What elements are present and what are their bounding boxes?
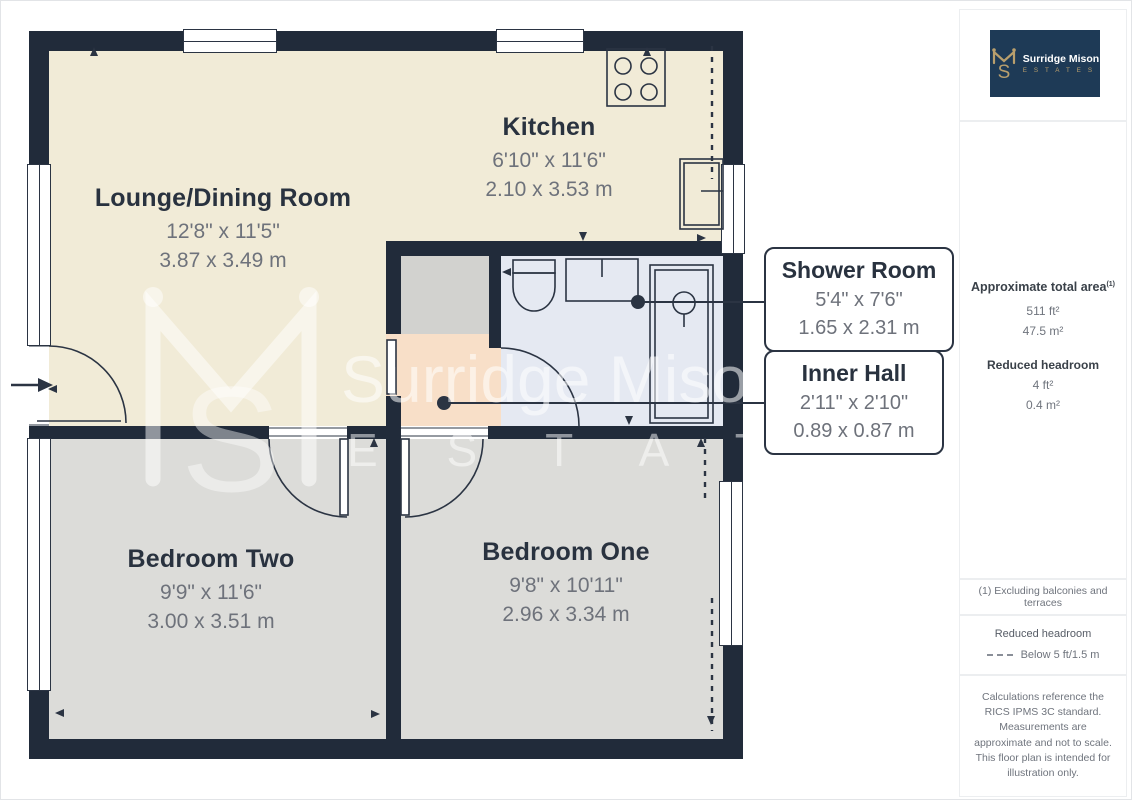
lounge-name: Lounge/Dining Room xyxy=(73,184,373,213)
headroom-title: Reduced headroom xyxy=(960,358,1126,372)
svg-text:S: S xyxy=(997,62,1010,81)
bedroom-one-name: Bedroom One xyxy=(421,538,711,567)
entrance-door-gap xyxy=(29,346,49,426)
agency-name: Surridge Mison xyxy=(1023,53,1099,65)
shower-room-callout: Shower Room 5'4" x 7'6" 1.65 x 2.31 m xyxy=(764,247,954,352)
sidebar-legend-card: Reduced headroom Below 5 ft/1.5 m xyxy=(959,615,1127,675)
agency-logo: S Surridge Mison E S T A T E S xyxy=(990,30,1100,97)
kitchen-name: Kitchen xyxy=(429,113,669,142)
headroom-m: 0.4 m² xyxy=(960,398,1126,412)
wall-kitchen-bottom xyxy=(386,241,723,256)
brand-suffix: 360 xyxy=(1061,796,1084,800)
area-ft: 511 ft² xyxy=(960,304,1126,318)
wall-exterior-right xyxy=(723,31,743,759)
bedroom-one-metric: 2.96 x 3.34 m xyxy=(421,600,711,629)
area-title: Approximate total area xyxy=(971,280,1106,294)
wall-shower-left xyxy=(489,256,501,348)
sidebar-note-card: (1) Excluding balconies and terraces xyxy=(959,579,1127,615)
disclaimer-text: Calculations reference the RICS IPMS 3C … xyxy=(972,690,1114,781)
excluding-note: (1) Excluding balconies and terraces xyxy=(968,585,1118,609)
window-right-bedroom-one xyxy=(719,481,743,646)
floorplan-page: S Surridge Mison E S T A T E S Lounge/Di… xyxy=(0,0,1132,800)
window-left-lounge xyxy=(27,164,51,346)
wall-spine-upper xyxy=(386,241,401,334)
bedroom-one-imperial: 9'8" x 10'11" xyxy=(421,571,711,600)
wall-bedroom-one-top xyxy=(488,426,723,439)
lounge-imperial: 12'8" x 11'5" xyxy=(73,217,373,246)
inner-hall-callout: Inner Hall 2'11" x 2'10" 0.89 x 0.87 m xyxy=(764,350,944,455)
shower-room-metric: 1.65 x 2.31 m xyxy=(780,314,938,342)
wall-exterior-bottom xyxy=(29,739,743,759)
wall-spine-central xyxy=(386,396,401,739)
kitchen-metric: 2.10 x 3.53 m xyxy=(429,175,669,204)
sidebar-disclaimer-card: Calculations reference the RICS IPMS 3C … xyxy=(959,675,1127,797)
sidebar-logo-card: S Surridge Mison E S T A T E S xyxy=(959,9,1127,121)
inner-hall-floor xyxy=(386,334,501,426)
window-right-kitchen xyxy=(721,164,745,254)
shower-room-floor xyxy=(501,256,723,426)
lounge-metric: 3.87 x 3.49 m xyxy=(73,246,373,275)
shower-room-imperial: 5'4" x 7'6" xyxy=(780,286,938,314)
inner-hall-imperial: 2'11" x 2'10" xyxy=(780,389,928,417)
bedroom-two-name: Bedroom Two xyxy=(61,545,361,574)
inner-hall-name: Inner Hall xyxy=(780,360,928,387)
agency-tagline: E S T A T E S xyxy=(1023,67,1099,74)
wall-exterior-top xyxy=(29,31,743,51)
window-top-kitchen xyxy=(496,29,584,53)
cupboard-floor xyxy=(399,256,489,334)
inner-hall-metric: 0.89 x 0.87 m xyxy=(780,417,928,445)
window-left-bedroom-two xyxy=(27,438,51,691)
agency-monogram-icon: S xyxy=(991,47,1017,81)
kitchen-label: Kitchen 6'10" x 11'6" 2.10 x 3.53 m xyxy=(429,113,669,205)
area-note-ref: (1) xyxy=(1106,281,1115,288)
wall-bedroom-two-top-b xyxy=(347,426,386,439)
dashed-line-legend-icon xyxy=(987,654,1013,656)
headroom-ft: 4 ft² xyxy=(960,378,1126,392)
bedroom-two-label: Bedroom Two 9'9" x 11'6" 3.00 x 3.51 m xyxy=(61,545,361,637)
wall-bedroom-two-top-a xyxy=(29,426,269,439)
bedroom-two-imperial: 9'9" x 11'6" xyxy=(61,578,361,607)
legend-label: Below 5 ft/1.5 m xyxy=(1021,649,1100,661)
brand-name: GIRAFFE xyxy=(1001,796,1061,800)
bedroom-one-label: Bedroom One 9'8" x 10'11" 2.96 x 3.34 m xyxy=(421,538,711,630)
area-m: 47.5 m² xyxy=(960,324,1126,338)
kitchen-imperial: 6'10" x 11'6" xyxy=(429,146,669,175)
sidebar-area-card: Approximate total area(1) 511 ft² 47.5 m… xyxy=(959,121,1127,579)
bedroom-two-metric: 3.00 x 3.51 m xyxy=(61,607,361,636)
window-top-lounge xyxy=(183,29,277,53)
shower-room-name: Shower Room xyxy=(780,257,938,284)
legend-title: Reduced headroom xyxy=(960,628,1126,640)
lounge-label: Lounge/Dining Room 12'8" x 11'5" 3.87 x … xyxy=(73,184,373,276)
